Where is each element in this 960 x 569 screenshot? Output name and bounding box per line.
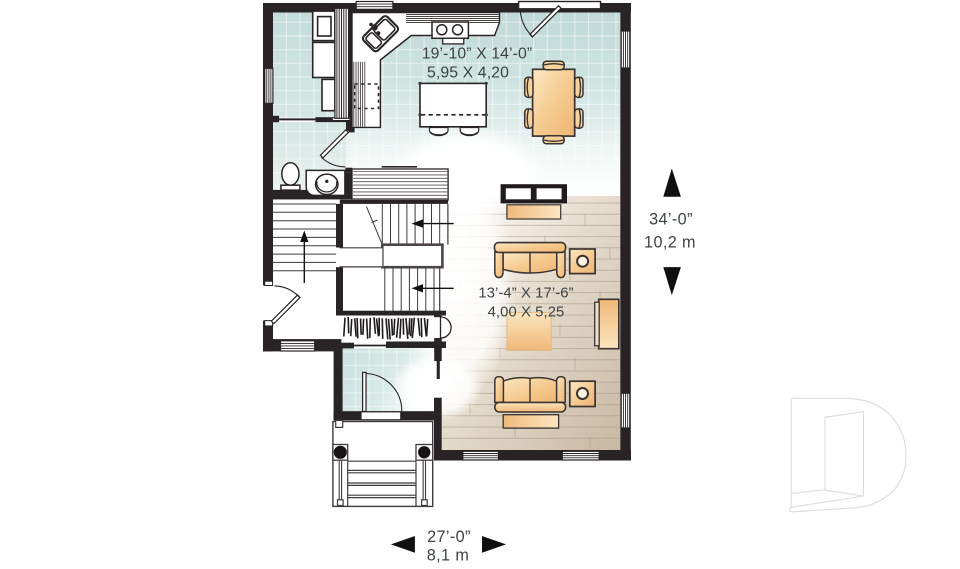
svg-text:34’-0”: 34’-0” bbox=[649, 211, 693, 229]
svg-text:5,95 X 4,20: 5,95 X 4,20 bbox=[427, 65, 509, 82]
svg-text:8,1 m: 8,1 m bbox=[427, 547, 470, 565]
svg-text:13’-4” X 17’-6”: 13’-4” X 17’-6” bbox=[478, 286, 573, 302]
svg-text:19’-10” X 14’-0”: 19’-10” X 14’-0” bbox=[422, 46, 532, 63]
svg-text:10,2 m: 10,2 m bbox=[644, 234, 696, 252]
svg-text:4,00 X 5,25: 4,00 X 5,25 bbox=[488, 305, 565, 321]
svg-text:27’-0”: 27’-0” bbox=[427, 528, 471, 546]
